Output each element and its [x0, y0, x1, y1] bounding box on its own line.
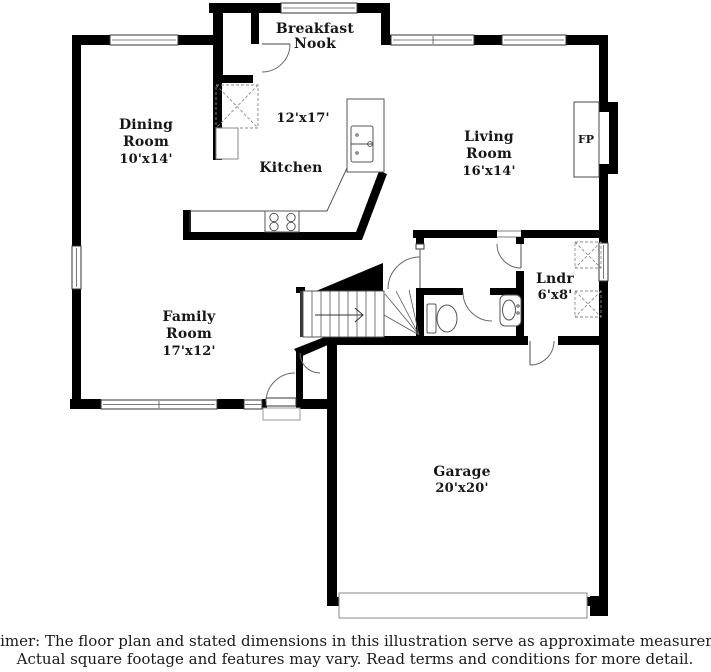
- label-fireplace: FP: [578, 133, 594, 146]
- garage-door: [339, 593, 587, 618]
- door-laundry-to-garage: [530, 341, 554, 365]
- front-step: [263, 408, 300, 420]
- floorplan-page: Breakfast Nook Dining Room 10'x14' 12'x1…: [0, 0, 711, 672]
- label-living-dims: 16'x14': [462, 164, 515, 179]
- disclaimer-text: Disclaimer: The floor plan and stated di…: [0, 632, 711, 668]
- washer-dryer: [575, 242, 601, 317]
- label-family-line1: Family: [162, 309, 216, 325]
- disclaimer-line2: Actual square footage and features may v…: [16, 650, 694, 668]
- bathroom-sink: [500, 295, 521, 326]
- front-door: [263, 373, 300, 420]
- window-left-wall: [72, 246, 81, 289]
- window-dining: [110, 35, 178, 45]
- labels-layer: Breakfast Nook Dining Room 10'x14' 12'x1…: [119, 21, 594, 496]
- windows-layer: [72, 3, 608, 409]
- label-kitchen-dims: 12'x17': [276, 111, 329, 126]
- window-family-long: [101, 400, 217, 409]
- door-foyer: [388, 244, 424, 289]
- label-dining-line1: Dining: [119, 117, 173, 133]
- label-breakfast-nook-line2: Nook: [294, 36, 336, 52]
- label-garage-dims: 20'x20': [435, 481, 488, 496]
- kitchen-island: [347, 99, 384, 172]
- floorplan-drawing: Breakfast Nook Dining Room 10'x14' 12'x1…: [0, 0, 711, 672]
- window-living-right: [502, 35, 566, 45]
- disclaimer-line1: Disclaimer: The floor plan and stated di…: [0, 632, 711, 650]
- door-laundry: [497, 244, 521, 268]
- label-laundry-dims: 6'x8': [538, 288, 573, 303]
- label-dining-dims: 10'x14': [119, 152, 172, 167]
- pantry-cabinet: [216, 85, 258, 159]
- label-living-line2: Room: [466, 146, 512, 162]
- staircase: [303, 290, 419, 337]
- window-living-left: [391, 35, 474, 45]
- window-laundry: [599, 243, 608, 281]
- door-powder-room: [463, 292, 492, 321]
- label-kitchen-name: Kitchen: [259, 160, 322, 176]
- label-breakfast-nook-line1: Breakfast: [276, 21, 354, 37]
- window-breakfast-nook: [281, 3, 357, 13]
- label-garage-name: Garage: [433, 464, 490, 480]
- toilet: [427, 304, 457, 333]
- label-dining-line2: Room: [123, 134, 169, 150]
- label-family-line2: Room: [166, 326, 212, 342]
- door-breakfast-nook: [262, 44, 290, 72]
- kitchen-counter: [190, 168, 347, 232]
- label-family-dims: 17'x12': [162, 344, 215, 359]
- window-family-small: [244, 400, 262, 409]
- label-living-line1: Living: [464, 129, 514, 145]
- label-laundry-name: Lndr: [536, 271, 574, 287]
